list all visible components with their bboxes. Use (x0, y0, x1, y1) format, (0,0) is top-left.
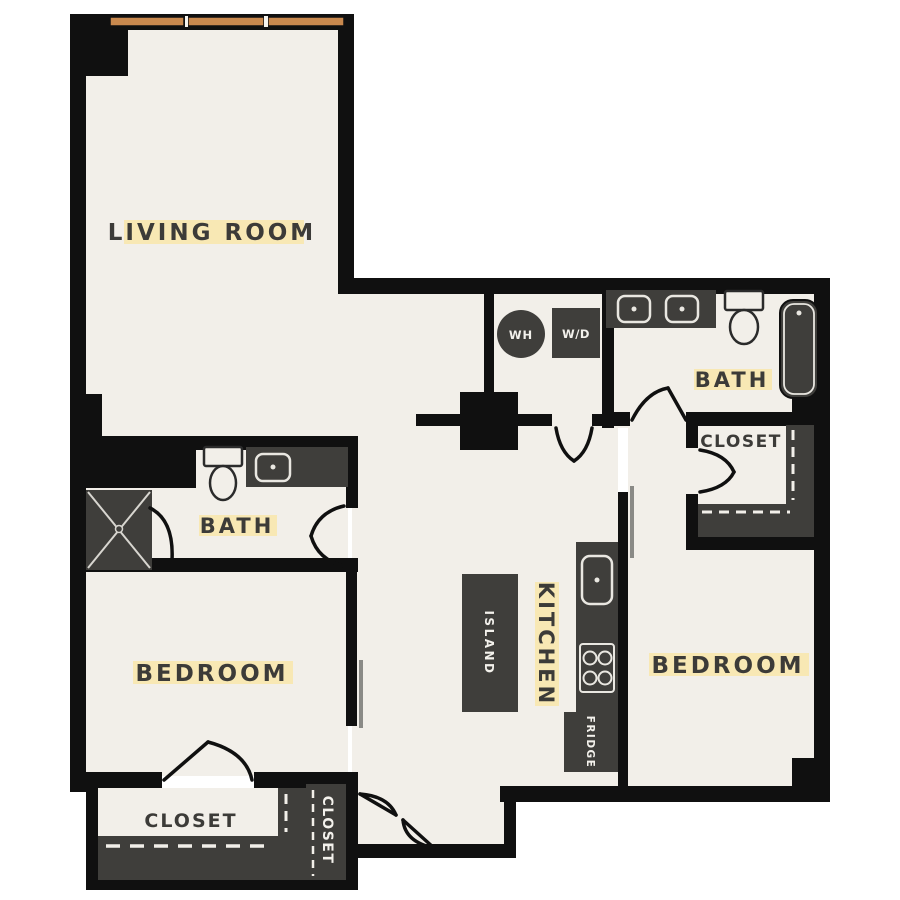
shower-icon (86, 490, 152, 570)
closet-upper-label: CLOSET (700, 432, 782, 452)
living-room-label: LIVING ROOM (108, 220, 316, 246)
closet-bottom-small-label: CLOSET (319, 796, 335, 865)
floor-plan: WH W/D ISLAND (0, 0, 900, 900)
closet-bottom-label: CLOSET (144, 810, 237, 832)
pocket-door (359, 660, 363, 728)
bedroom-left-label: BEDROOM (135, 661, 288, 687)
pocket-door (630, 486, 634, 558)
kitchen-label: KITCHEN (534, 582, 558, 706)
floor-plan-page: WH W/D ISLAND (0, 0, 900, 900)
island-label: ISLAND (482, 610, 496, 675)
window-pane (268, 17, 344, 26)
bath-upper-label: BATH (695, 368, 770, 392)
bath-left-label: BATH (200, 514, 275, 538)
window-pane (110, 17, 184, 26)
window-band (106, 15, 348, 28)
bathtub-icon (780, 300, 818, 398)
bedroom-right-label: BEDROOM (651, 653, 804, 679)
window-pane (188, 17, 264, 26)
washer-dryer-label: W/D (562, 327, 590, 341)
water-heater-label: WH (509, 328, 533, 342)
fridge-label: FRIDGE (584, 716, 596, 769)
